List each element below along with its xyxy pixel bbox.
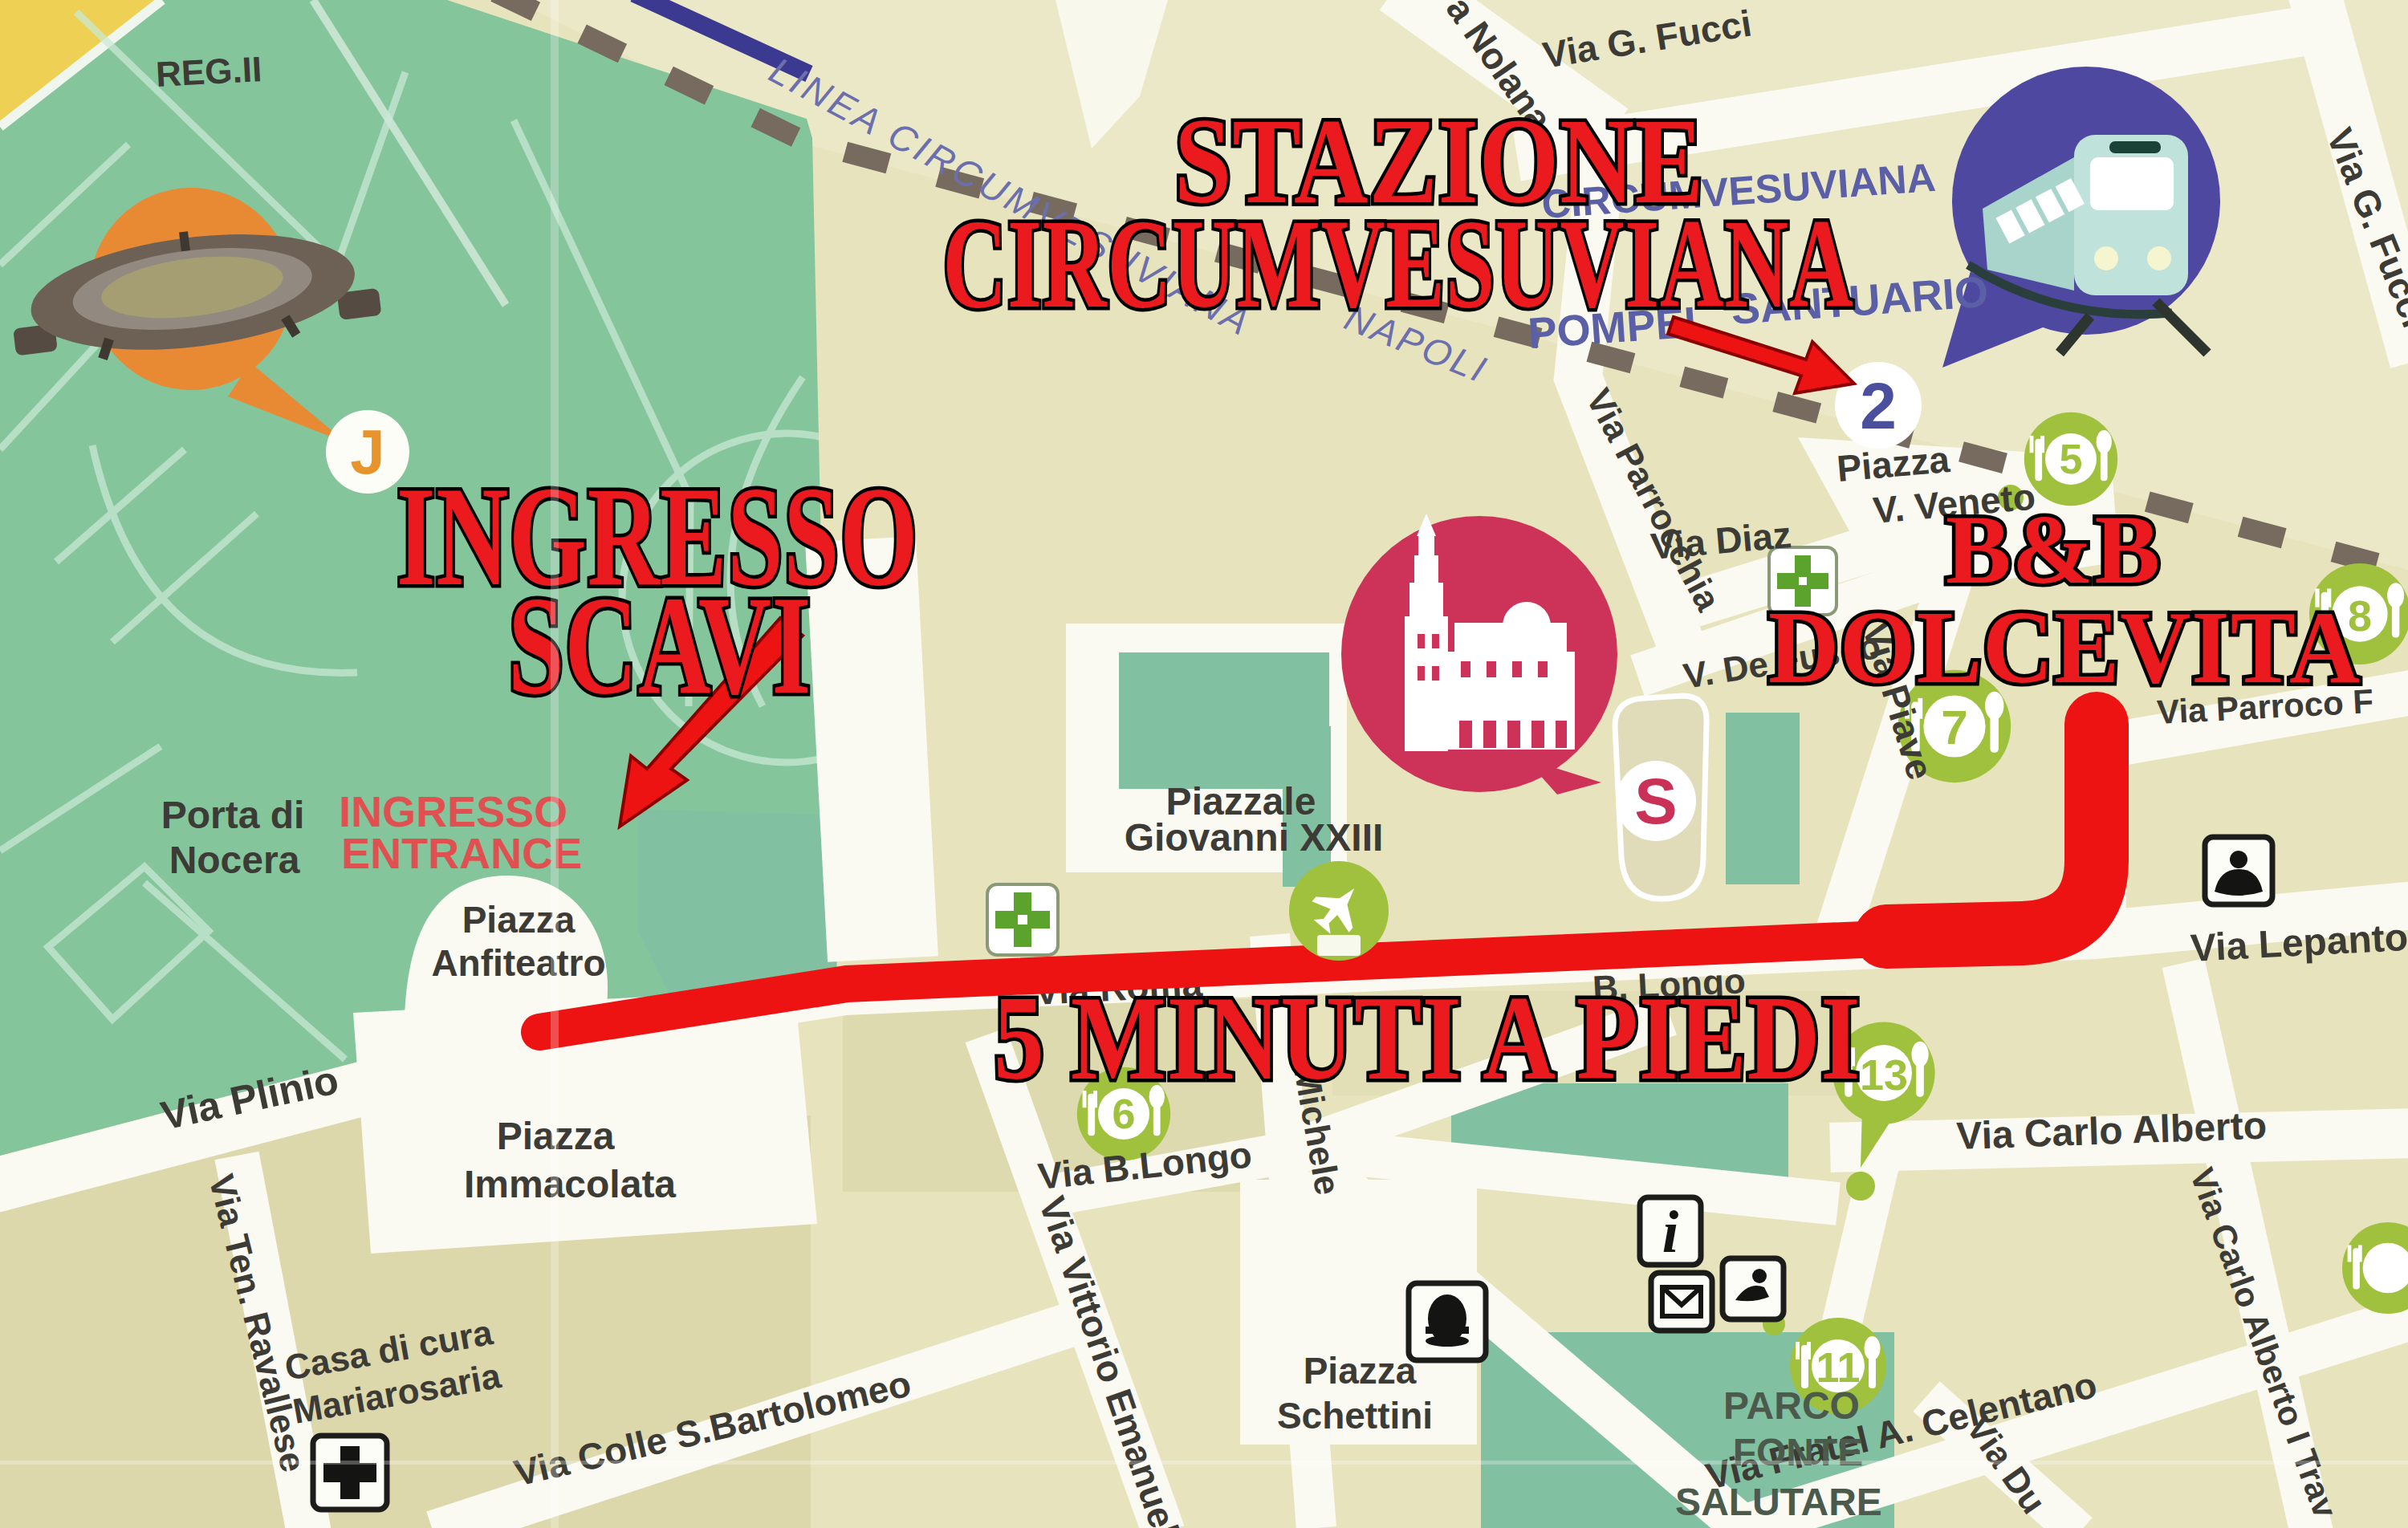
svg-text:S: S [1634, 766, 1677, 837]
svg-text:5: 5 [2060, 436, 2083, 482]
svg-text:7: 7 [1941, 701, 1967, 754]
svg-text:Anfiteatro: Anfiteatro [431, 942, 605, 984]
svg-text:13: 13 [1860, 1050, 1908, 1099]
svg-text:PARCO: PARCO [1723, 1384, 1860, 1427]
svg-text:J: J [350, 417, 384, 487]
svg-text:Piazza: Piazza [1304, 1350, 1417, 1392]
svg-text:INGRESSO: INGRESSO [339, 787, 567, 835]
svg-text:Schettini: Schettini [1277, 1395, 1433, 1437]
svg-text:Giovanni XXIII: Giovanni XXIII [1125, 816, 1384, 859]
svg-text:SALUTARE: SALUTARE [1675, 1481, 1882, 1523]
svg-text:CIRCUMVESUVIANA: CIRCUMVESUVIANA [943, 193, 1854, 334]
svg-text:2: 2 [1860, 369, 1897, 442]
svg-text:ENTRANCE: ENTRANCE [341, 829, 582, 877]
svg-text:Immacolata: Immacolata [464, 1163, 676, 1205]
svg-text:DOLCEVITA: DOLCEVITA [1768, 589, 2361, 705]
svg-text:REG.II: REG.II [155, 49, 262, 94]
svg-text:B&B: B&B [1946, 495, 2161, 603]
svg-text:i: i [1662, 1199, 1679, 1265]
svg-text:5 MINUTI A PIEDI: 5 MINUTI A PIEDI [994, 971, 1861, 1104]
svg-text:Porta di: Porta di [161, 794, 305, 836]
svg-text:FONTE: FONTE [1733, 1431, 1864, 1473]
svg-text:Nocera: Nocera [169, 839, 300, 881]
